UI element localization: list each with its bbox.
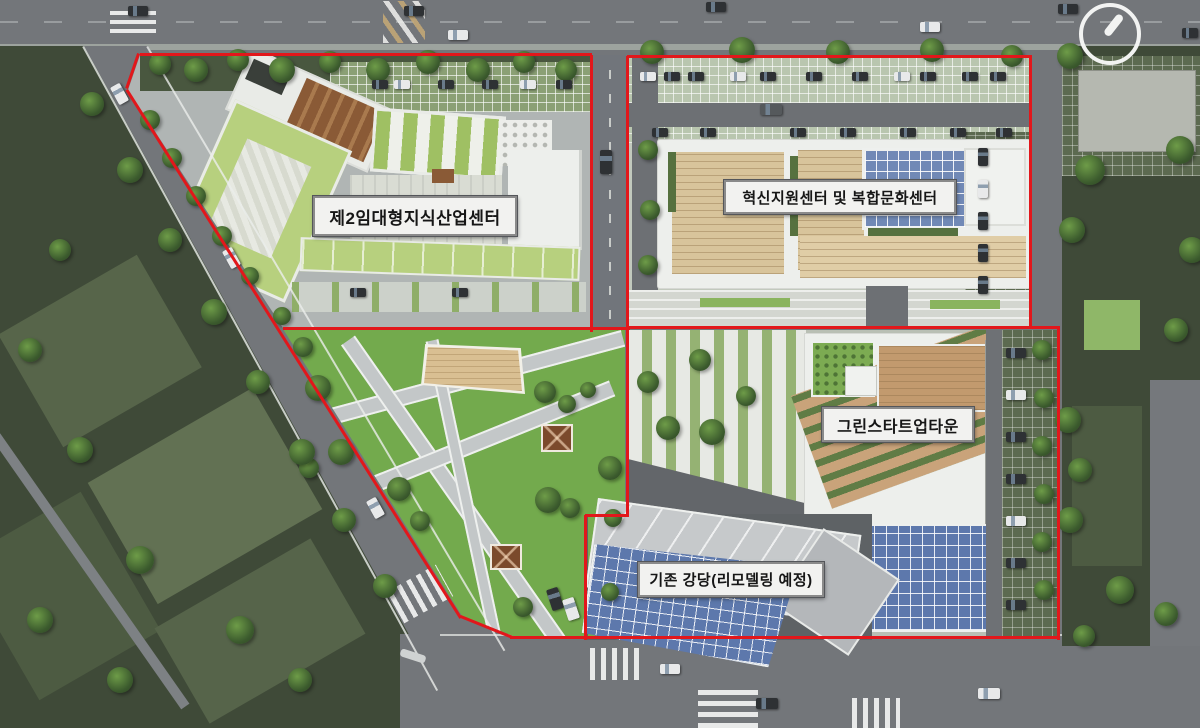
neighbor-building xyxy=(1078,70,1196,152)
wood-deck-band xyxy=(800,236,1026,278)
lawn-strip xyxy=(930,300,1000,309)
crosswalk xyxy=(698,690,758,728)
boundary-line xyxy=(584,515,587,640)
top-sidewalk xyxy=(0,44,1200,50)
shrub-strip xyxy=(668,152,676,212)
zone-label-industry-center: 제2임대형지식산업센터 xyxy=(313,196,517,236)
pavilion xyxy=(490,544,522,570)
access-road xyxy=(986,330,1002,638)
lane-line xyxy=(0,21,1200,23)
boundary-line xyxy=(585,514,629,517)
boundary-line xyxy=(627,55,1032,58)
building-slab xyxy=(508,150,582,250)
zone-label-auditorium: 기존 강당(리모델링 예정) xyxy=(638,562,824,597)
parking-access-road xyxy=(628,103,1032,127)
dark-roof-block xyxy=(245,59,290,95)
neighbor-road xyxy=(1150,380,1200,646)
zone-label-green-startup-town: 그린스타트업타운 xyxy=(822,407,974,442)
crosswalk xyxy=(110,11,156,34)
white-roof xyxy=(964,148,1026,226)
service-road xyxy=(632,57,658,327)
boundary-line xyxy=(626,56,629,517)
bottom-road xyxy=(400,634,1200,728)
wood-terrace xyxy=(877,344,995,412)
crosswalk xyxy=(852,698,900,728)
lawn-patch xyxy=(1084,300,1140,350)
central-road xyxy=(592,55,628,331)
pavilion xyxy=(541,424,573,452)
compass-needle xyxy=(1103,13,1125,38)
field-patch xyxy=(0,255,202,448)
y-road-marking xyxy=(399,648,426,664)
boundary-line xyxy=(510,636,1060,639)
building-innovation xyxy=(658,140,1030,288)
boundary-line xyxy=(283,327,630,330)
parking-lot xyxy=(628,57,1032,103)
boundary-line xyxy=(1057,326,1060,640)
right-green-area xyxy=(1062,46,1200,646)
playground-sand xyxy=(424,347,522,391)
boundary-line xyxy=(628,326,1060,329)
boundary-line xyxy=(1029,56,1032,329)
hatched-road-marking xyxy=(383,1,425,43)
north-arrow-icon xyxy=(1079,3,1141,65)
parking-column xyxy=(1002,330,1060,638)
field-patch xyxy=(1072,406,1142,566)
wood-bench xyxy=(432,169,454,183)
rooftop-box xyxy=(845,366,877,396)
zone-label-innovation-center: 혁신지원센터 및 복합문화센터 xyxy=(724,180,956,214)
site-plan: 제2임대형지식산업센터 혁신지원센터 및 복합문화센터 그린스타트업타운 기존 … xyxy=(0,0,1200,728)
parking-strip xyxy=(292,282,586,312)
crosswalk xyxy=(590,648,644,680)
lawn-strip xyxy=(700,298,790,307)
shrub-strip xyxy=(868,228,958,236)
lane-line xyxy=(609,67,611,319)
top-road xyxy=(0,0,1200,46)
boundary-line xyxy=(590,55,593,332)
driveway xyxy=(866,286,908,327)
boundary-line xyxy=(140,53,592,56)
